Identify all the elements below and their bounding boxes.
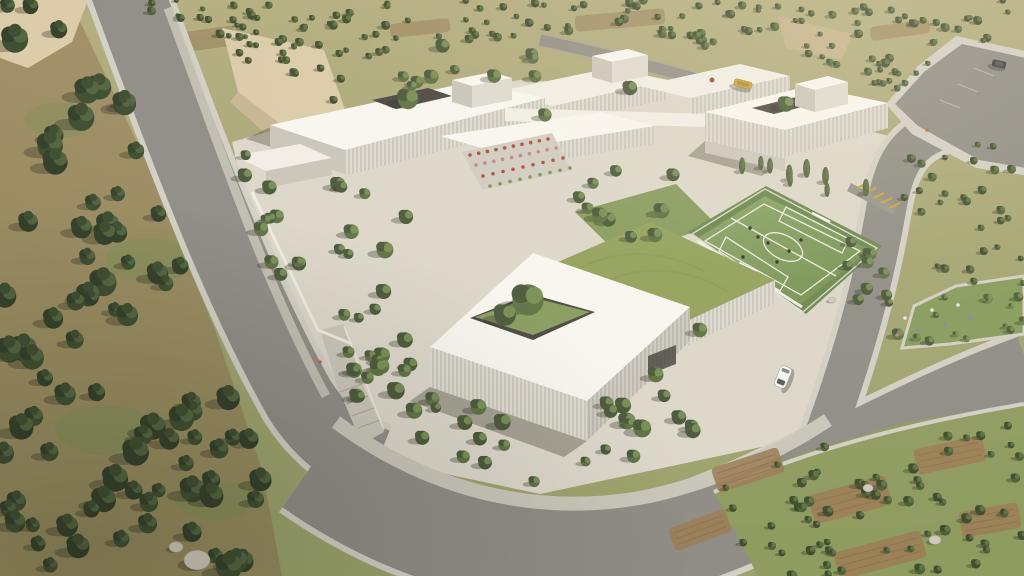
vignette-overlay [0,0,1024,576]
aerial-render [0,0,1024,576]
aerial-render-stage [0,0,1024,576]
